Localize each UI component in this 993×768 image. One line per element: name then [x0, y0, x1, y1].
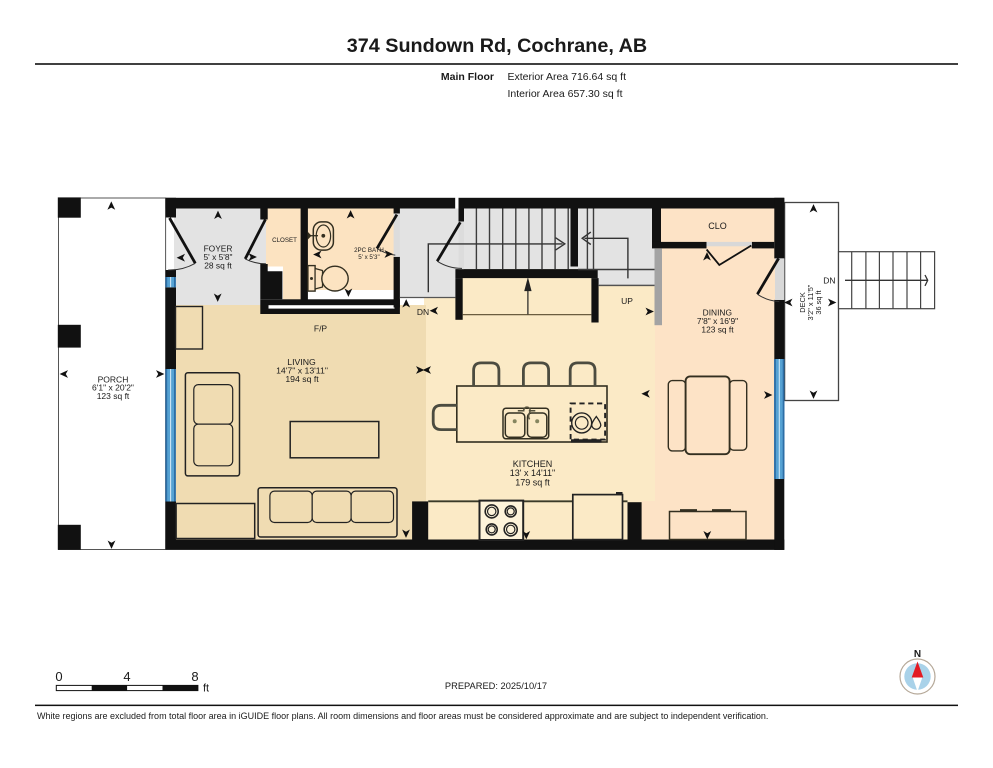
svg-text:28 sq ft: 28 sq ft	[204, 261, 232, 271]
svg-text:5' x 5'3": 5' x 5'3"	[358, 254, 379, 261]
svg-text:4: 4	[123, 669, 130, 684]
svg-text:ft: ft	[203, 683, 209, 695]
svg-text:UP: UP	[621, 296, 633, 306]
svg-text:179 sq ft: 179 sq ft	[515, 477, 550, 487]
svg-text:Exterior Area 716.64 sq ft: Exterior Area 716.64 sq ft	[508, 71, 627, 83]
svg-text:DN: DN	[417, 307, 429, 317]
svg-text:CLOSET: CLOSET	[272, 237, 297, 244]
svg-text:123 sq ft: 123 sq ft	[97, 391, 130, 401]
svg-text:8: 8	[191, 669, 198, 684]
svg-text:N: N	[914, 649, 921, 660]
svg-text:194 sq ft: 194 sq ft	[285, 374, 319, 384]
svg-text:DN: DN	[823, 276, 835, 286]
svg-text:Main Floor: Main Floor	[441, 71, 494, 83]
svg-text:123 sq ft: 123 sq ft	[701, 324, 734, 334]
svg-text:CLO: CLO	[708, 221, 727, 231]
svg-text:Interior Area 657.30 sq ft: Interior Area 657.30 sq ft	[508, 88, 623, 100]
svg-text:2PC BATH: 2PC BATH	[354, 247, 384, 254]
svg-text:374 Sundown Rd, Cochrane, AB: 374 Sundown Rd, Cochrane, AB	[347, 35, 647, 57]
svg-text:0: 0	[55, 669, 62, 684]
svg-text:36 sq ft: 36 sq ft	[814, 290, 823, 314]
svg-text:F/P: F/P	[314, 324, 328, 334]
svg-text:White regions are excluded fro: White regions are excluded from total fl…	[37, 711, 768, 721]
svg-text:PREPARED: 2025/10/17: PREPARED: 2025/10/17	[445, 681, 547, 691]
